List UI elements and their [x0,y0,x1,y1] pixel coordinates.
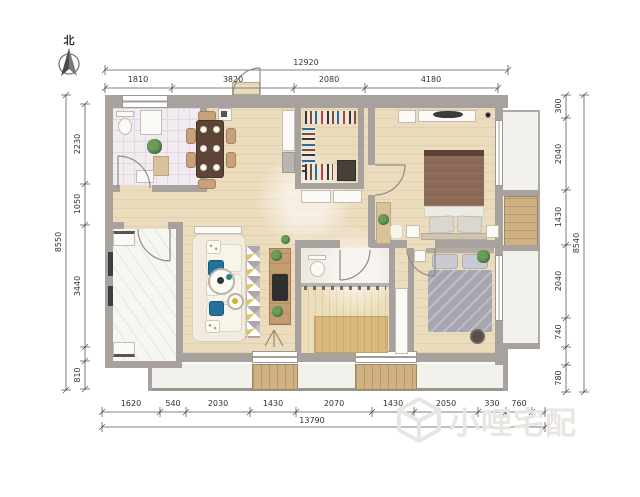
dim-right-seg-0: 300 [555,98,563,113]
window-living-balcony [252,351,298,363]
dim-right-seg-1: 2040 [555,144,563,164]
bathroom-counter [153,156,169,176]
bedroom2-nightstand [414,250,426,262]
bedroom2-plant [477,250,490,263]
master-bed-pillow-1 [428,215,454,234]
master-bed-headboard [421,233,487,240]
dim-top-overall: 12920 [293,59,318,67]
closet-clothes-rail-top [305,111,356,124]
dining-chair-left-1 [186,128,196,144]
north-label: 北 [64,32,75,48]
dim-top-seg-0: 1810 [128,76,148,84]
wall-bathroom-bottom-a [112,185,120,192]
dining-plate-2 [213,126,220,133]
toilet-bowl [118,118,132,135]
watermark-house-icon [395,396,443,444]
wall-bedroom2-left [408,248,414,356]
watermark: 小哩宅配 [395,396,577,444]
dim-right-seg-4: 740 [555,324,563,339]
toilet2-bowl [310,261,325,277]
wall-mid-a [295,240,340,248]
dining-chair-bottom [198,179,216,189]
sofa-pillow-floral-2 [205,320,220,333]
closet-clothes-rail-bottom [305,164,333,180]
closet-cabinet-b [333,190,362,203]
wall-bottom-right-vertical [503,348,508,391]
dim-right-overall: 8540 [573,233,581,253]
dim-left-seg-0: 2230 [74,134,82,154]
dining-plate-6 [213,164,220,171]
hall-appliance [282,152,295,173]
master-desk-chair [390,224,403,239]
console-plant-top [271,250,282,261]
balcony-ac-unit-2 [108,286,113,306]
bottom-balcony-deck-2 [355,364,417,390]
dining-chair-right-2 [226,152,236,168]
dim-top-seg-2: 2080 [319,76,339,84]
fridge [282,110,295,151]
bathroom-mat [136,170,154,183]
watermark-text: 小哩宅配 [449,398,577,443]
dim-left-overall: 8550 [55,232,63,252]
wall-right-balcony-stub-2 [503,245,540,251]
wall-mid-c [435,240,500,248]
right-balcony-deck [504,196,538,248]
bottom-balcony-deck-1 [252,364,298,390]
wall-right-balcony-stub-1 [503,190,540,196]
bedroom2-duvet [428,270,492,332]
dim-bottom-seg-2: 2030 [208,400,228,408]
wall-appliance-inner [221,111,227,117]
dim-bottom-seg-0: 1620 [121,400,141,408]
wall-left-balcony-top-a [105,222,124,229]
coffee-table-yellow-dish [232,298,238,304]
dining-chair-left-2 [186,152,196,168]
wall-left [105,108,113,368]
dining-chair-right-1 [226,128,236,144]
coffee-table-teal-dish [226,274,232,280]
dim-left-seg-1: 1050 [74,194,82,214]
wall-closet-left [295,108,301,187]
sofa-pillow-blue-2 [209,301,224,316]
dining-plate-4 [213,145,220,152]
kitchen-counter-items [304,286,386,290]
balcony-box-top [113,231,135,246]
floor-plan-canvas: 12920 1810 3820 2080 4180 13790 1620 540… [0,0,640,497]
sofa-side-shelf [194,226,242,234]
wall-left-balcony-divider [176,222,183,361]
dim-top-seg-3: 4180 [421,76,441,84]
toilet2-tank [308,255,326,260]
dim-left-seg-3: 810 [74,367,82,382]
dim-right-seg-2: 1430 [555,207,563,227]
wall-bottom-main [176,353,506,362]
balcony-box-bottom [113,342,135,357]
window-bedroom2-right [495,255,503,321]
master-bed-duvet [424,156,484,206]
dining-plate-1 [200,126,207,133]
master-nightstand-left [406,225,420,238]
dim-right-seg-3: 2040 [555,271,563,291]
master-bed-pillow-2 [457,215,483,233]
bathroom-plant [147,139,162,154]
dim-bottom-seg-4: 2070 [324,400,344,408]
wall-closet-right [358,108,364,188]
dim-right-seg-5: 780 [555,370,563,385]
balcony-ac-unit-1 [108,252,113,276]
master-tv [433,111,463,118]
coffee-table-dark-dish [217,277,224,284]
master-nightstand-right [486,225,499,238]
dim-top-seg-1: 3820 [223,76,243,84]
dining-plate-3 [200,145,207,152]
wall-kitchen-left [295,248,301,358]
living-tv [272,274,288,301]
window-bathroom-top [122,95,168,108]
hall-small-plant [281,235,290,244]
dim-bottom-seg-1: 540 [165,400,180,408]
wall-master-left-a [368,108,375,165]
dining-plate-5 [200,164,207,171]
window-master-balcony [495,120,503,186]
bedroom2-stool [470,329,485,344]
bedroom2-pillow-1 [432,254,458,269]
bottom-balcony-floor [150,364,506,391]
kitchen-island [314,316,388,353]
dim-left-seg-2: 3440 [74,276,82,296]
wall-right-balcony-cap [503,343,540,349]
dim-bottom-seg-3: 1430 [263,400,283,408]
master-downlight [485,112,491,118]
toilet-tank [116,111,134,117]
closet-dark-wardrobe [337,160,356,181]
wall-closet-bottom [295,183,364,189]
console-plant-bottom [272,306,283,317]
wall-bottom-balcony-cap-left [148,364,152,391]
master-shelf [398,110,416,123]
closet-cabinet-a [301,190,331,203]
wall-left-balcony-bottom [105,361,182,368]
master-desk-plant [378,214,389,225]
dim-bottom-overall: 13790 [297,417,326,425]
washing-machine [140,110,162,135]
sofa-pillow-floral-1 [206,240,221,254]
hall-cabinet-column [395,288,408,354]
north-compass-icon [57,47,81,78]
